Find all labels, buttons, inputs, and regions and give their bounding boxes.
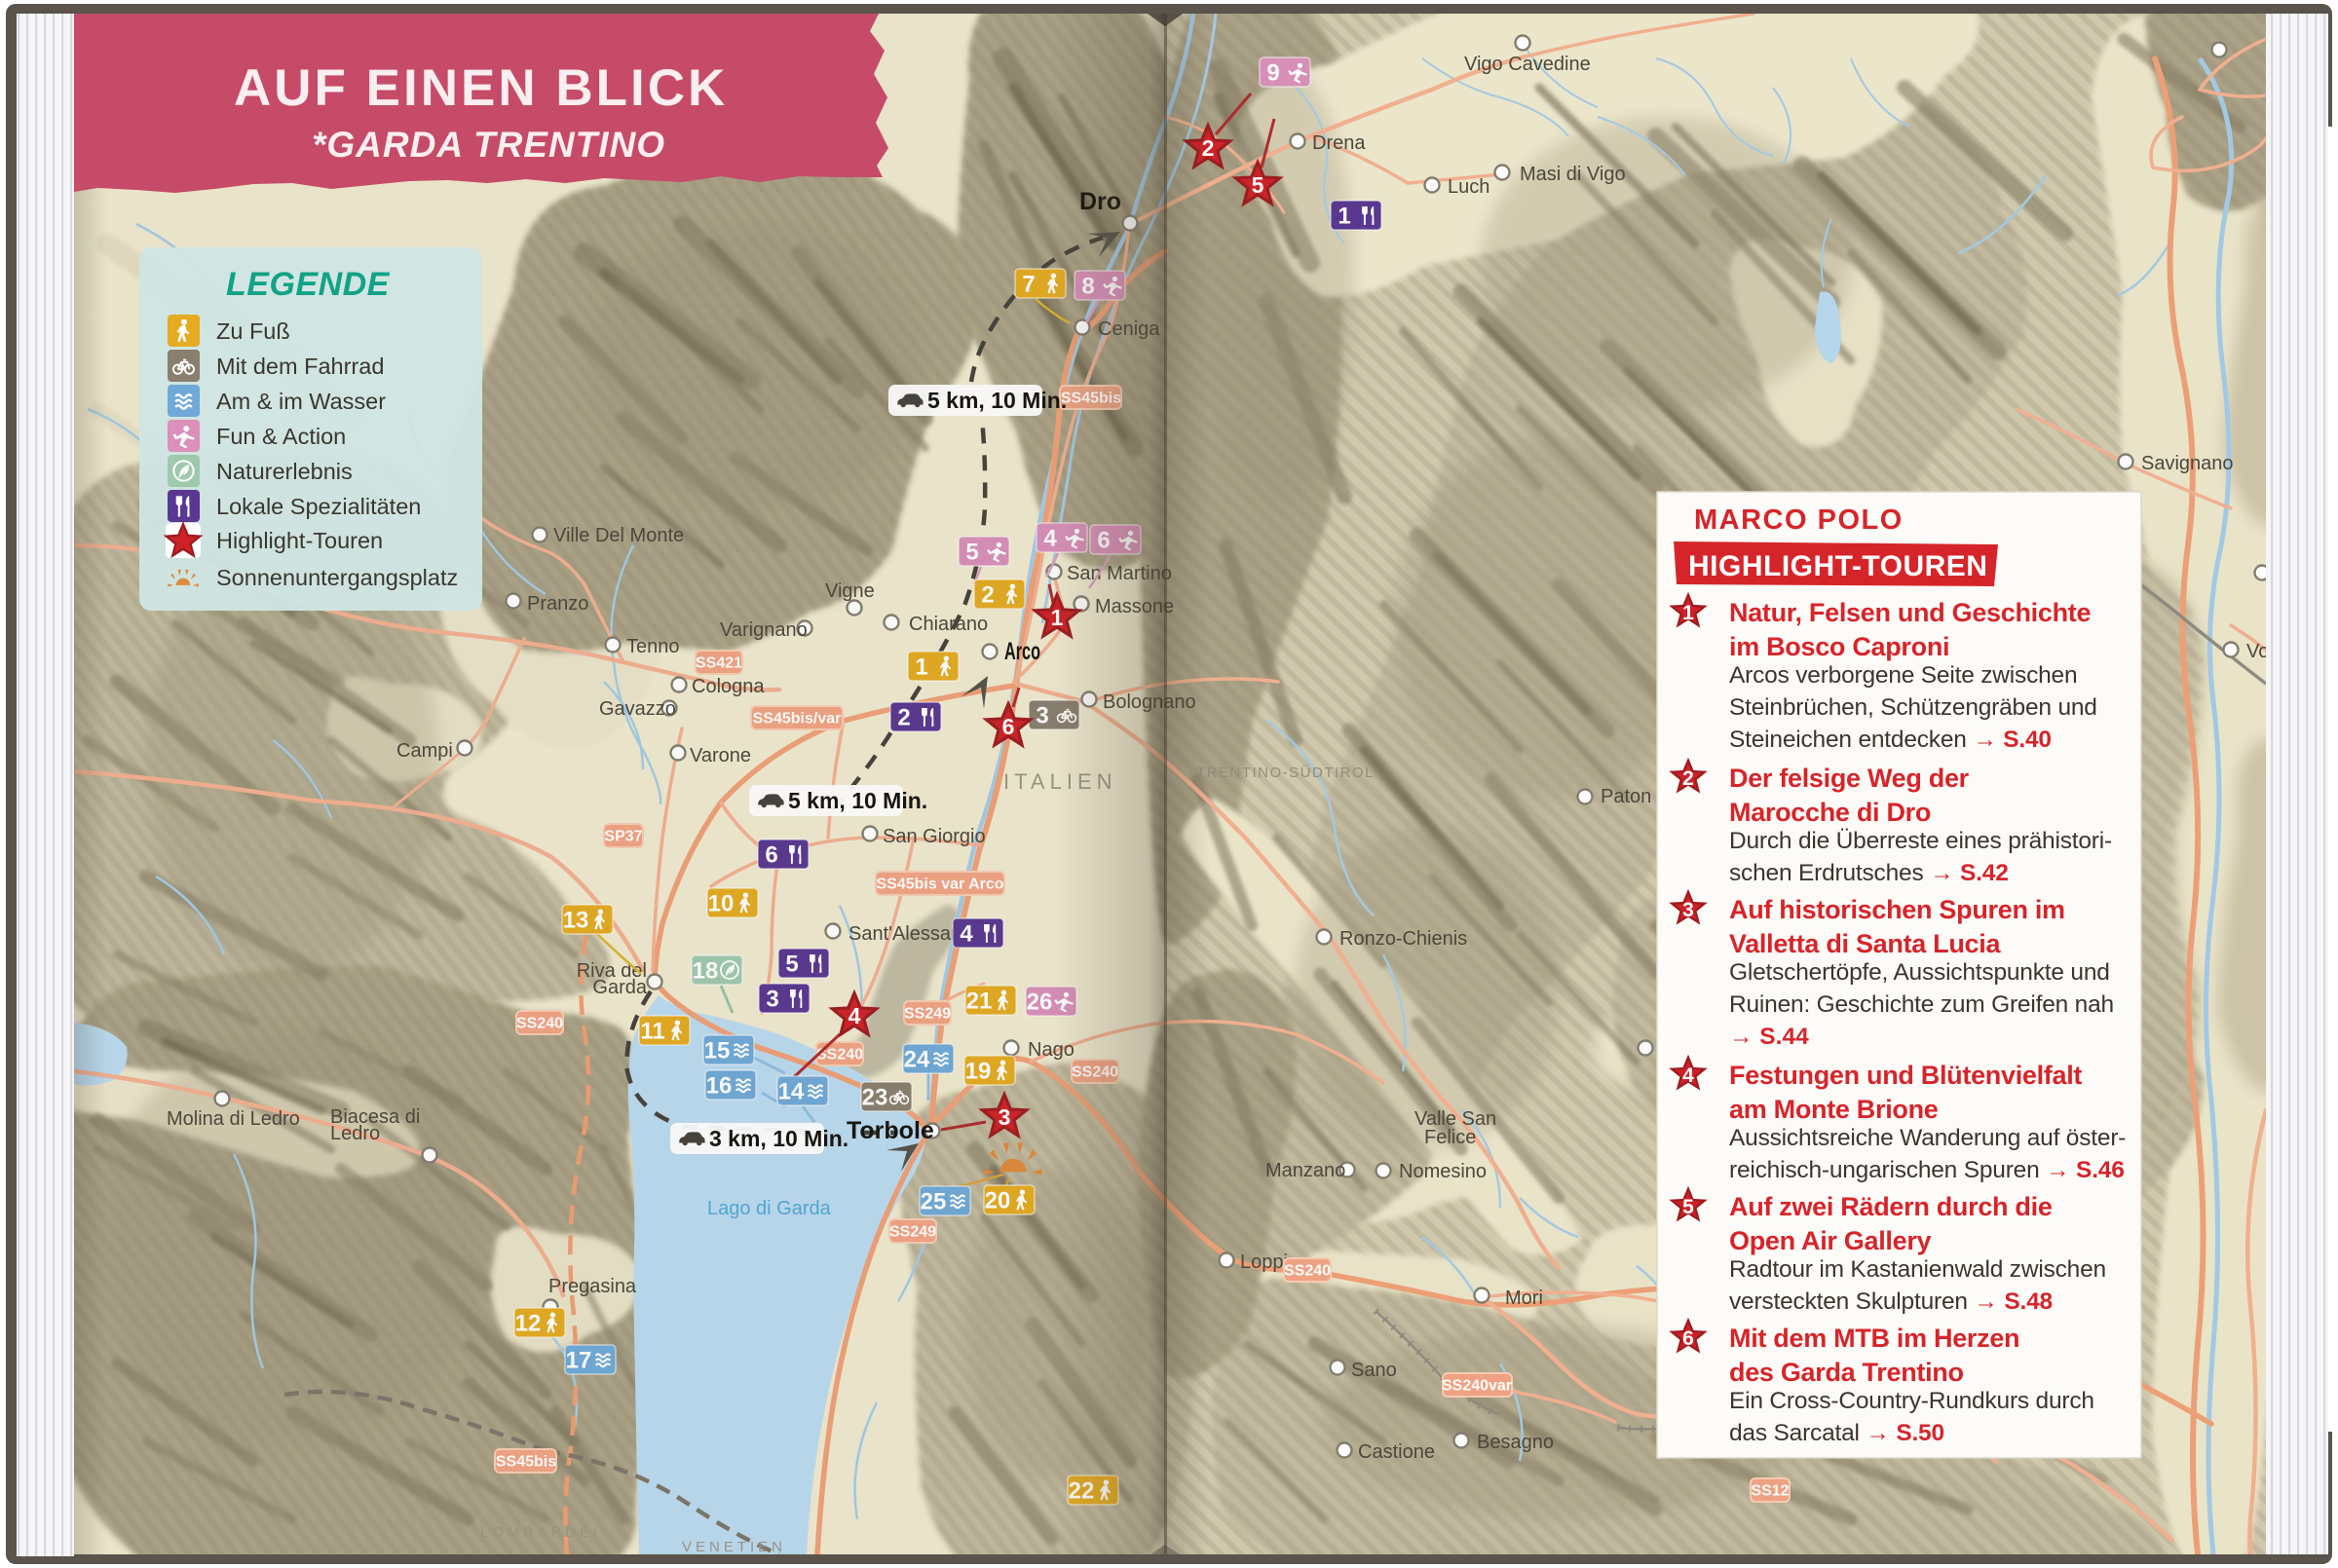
svg-text:Natur, Felsen und Geschichte: Natur, Felsen und Geschichte	[1729, 598, 2091, 627]
svg-text:Mit dem MTB im Herzen: Mit dem MTB im Herzen	[1729, 1324, 2019, 1353]
svg-text:Auf zwei Rädern durch die: Auf zwei Rädern durch die	[1729, 1192, 2053, 1221]
svg-text:3: 3	[1682, 899, 1694, 921]
svg-text:5: 5	[1682, 1196, 1694, 1218]
svg-text:Fun & Action: Fun & Action	[216, 424, 346, 449]
svg-text:Steinbrüchen, Schützengräben u: Steinbrüchen, Schützengräben und	[1729, 694, 2097, 721]
svg-text:versteckten Skulpturen → S.48: versteckten Skulpturen → S.48	[1729, 1288, 2053, 1315]
svg-text:1: 1	[1682, 602, 1694, 624]
svg-text:2: 2	[1682, 767, 1694, 790]
svg-text:*GARDA TRENTINO: *GARDA TRENTINO	[312, 125, 665, 165]
svg-text:Der felsige Weg der: Der felsige Weg der	[1729, 764, 1970, 793]
svg-text:Zu Fuß: Zu Fuß	[216, 318, 290, 344]
svg-text:Aussichtsreiche Wanderung auf: Aussichtsreiche Wanderung auf öster-	[1729, 1125, 2126, 1151]
svg-text:Ruinen: Geschichte zum Greifen: Ruinen: Geschichte zum Greifen nah	[1729, 991, 2114, 1018]
svg-text:das Sarcatal → S.50: das Sarcatal → S.50	[1729, 1420, 1944, 1446]
svg-text:des Garda Trentino: des Garda Trentino	[1729, 1358, 1964, 1387]
svg-text:4: 4	[1682, 1064, 1694, 1087]
svg-text:Steineichen entdecken → S.40: Steineichen entdecken → S.40	[1729, 727, 2052, 753]
svg-text:Marocche di Dro: Marocche di Dro	[1729, 798, 1931, 827]
svg-text:Durch die Überreste eines präh: Durch die Überreste eines prähistori-	[1729, 828, 2112, 854]
svg-text:Festungen und Blütenvielfalt: Festungen und Blütenvielfalt	[1729, 1061, 2082, 1090]
svg-text:HIGHLIGHT-TOUREN: HIGHLIGHT-TOUREN	[1688, 550, 1987, 582]
svg-text:im Bosco Caproni: im Bosco Caproni	[1729, 632, 1949, 661]
svg-text:MARCO POLO: MARCO POLO	[1694, 504, 1904, 536]
svg-text:Mit dem Fahrrad: Mit dem Fahrrad	[216, 354, 384, 379]
svg-text:→ S.44: → S.44	[1729, 1024, 1809, 1050]
svg-text:Ein Cross-Country-Rundkurs dur: Ein Cross-Country-Rundkurs durch	[1729, 1388, 2094, 1414]
svg-text:Highlight-Touren: Highlight-Touren	[216, 528, 383, 553]
svg-text:Am & im Wasser: Am & im Wasser	[216, 389, 386, 414]
svg-text:6: 6	[1682, 1327, 1694, 1350]
svg-text:Auf historischen Spuren im: Auf historischen Spuren im	[1729, 895, 2065, 924]
svg-text:reichisch-ungarischen Spuren →: reichisch-ungarischen Spuren → S.46	[1729, 1157, 2125, 1183]
svg-text:am Monte Brione: am Monte Brione	[1729, 1095, 1939, 1124]
svg-text:Sonnenuntergangsplatz: Sonnenuntergangsplatz	[216, 565, 458, 590]
svg-text:Open Air Gallery: Open Air Gallery	[1729, 1226, 1932, 1255]
svg-text:LEGENDE: LEGENDE	[226, 266, 391, 303]
svg-text:Valletta di Santa Lucia: Valletta di Santa Lucia	[1729, 929, 2001, 958]
svg-text:Naturerlebnis: Naturerlebnis	[216, 459, 353, 484]
svg-text:Radtour im Kastanienwald zwisc: Radtour im Kastanienwald zwischen	[1729, 1256, 2106, 1283]
svg-text:Lokale Spezialitäten: Lokale Spezialitäten	[216, 494, 421, 519]
svg-text:Arcos verborgene Seite zwische: Arcos verborgene Seite zwischen	[1729, 662, 2077, 689]
svg-text:schen Erdrutsches → S.42: schen Erdrutsches → S.42	[1729, 860, 2009, 886]
svg-text:AUF EINEN BLICK: AUF EINEN BLICK	[234, 59, 728, 117]
svg-text:Gletschertöpfe, Aussichtspunkt: Gletschertöpfe, Aussichtspunkte und	[1729, 959, 2110, 986]
